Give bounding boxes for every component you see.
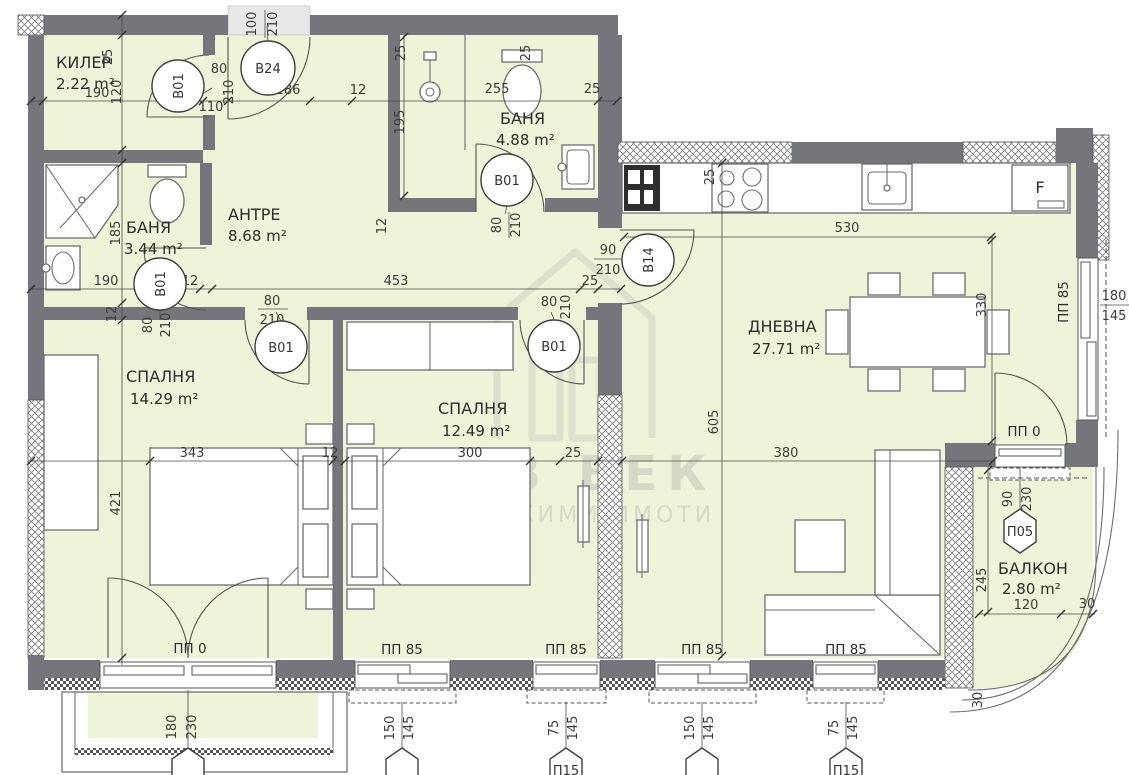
dim-label: 245 xyxy=(975,568,990,593)
wardrobe xyxy=(44,355,98,530)
room-name-closet: КИЛЕР xyxy=(56,53,111,72)
room-area-bedroom1: 14.29 m² xyxy=(130,390,198,408)
kitchen-counter xyxy=(622,163,1070,213)
kitchen-sink xyxy=(862,164,912,210)
room-name-bedroom2: СПАЛНЯ xyxy=(438,399,507,418)
oven-icon xyxy=(624,165,660,211)
window-right xyxy=(1078,258,1098,420)
panel-tag-p15: П15 xyxy=(833,764,859,775)
dim-label: 80 xyxy=(490,217,505,234)
dim-label: 90 xyxy=(600,243,617,258)
dim-label: 210 xyxy=(222,80,237,105)
callout-b01: B01 xyxy=(268,341,293,356)
room-area-bath1: 3.44 m² xyxy=(124,240,183,258)
room-area-bath2: 4.88 m² xyxy=(496,131,555,149)
bed xyxy=(347,424,530,609)
dim-label: 25 xyxy=(584,82,601,97)
dim-label: 453 xyxy=(384,274,409,289)
dim-label: 120 xyxy=(1014,598,1039,613)
french-door-window xyxy=(100,662,276,688)
dim-label: 150 xyxy=(383,716,398,741)
room-name-living: ДНЕВНА xyxy=(748,317,817,336)
dim-label: 210 xyxy=(596,263,621,278)
callout-b01: B01 xyxy=(154,271,169,296)
bed xyxy=(150,424,333,609)
wardrobe xyxy=(347,322,513,370)
dim-label: 300 xyxy=(458,446,483,461)
dim-label: 12 xyxy=(375,218,390,235)
dim-label: 343 xyxy=(180,446,205,461)
window xyxy=(655,662,750,688)
dim-label: 80 xyxy=(264,294,281,309)
window xyxy=(355,662,450,688)
dim-label: 255 xyxy=(485,82,510,97)
fridge-label: F xyxy=(1035,178,1044,197)
dim-label: 25 xyxy=(565,446,582,461)
dim-label: 30 xyxy=(1079,597,1096,612)
dim-label: 210 xyxy=(266,12,281,37)
room-name-balcony: БАЛКОН xyxy=(998,559,1068,578)
balcony-door-window xyxy=(995,445,1065,467)
window xyxy=(533,662,600,688)
window-tag-pp85: ПП 85 xyxy=(1056,281,1072,323)
dim-label: 25 xyxy=(519,45,534,62)
dim-label: 100 xyxy=(245,12,260,37)
dim-label: 12 xyxy=(322,446,339,461)
dim-label: 145 xyxy=(702,716,717,741)
dim-label: 12 xyxy=(350,83,367,98)
callout-b01: B01 xyxy=(494,174,519,189)
room-name-bedroom1: СПАЛНЯ xyxy=(126,367,195,386)
radiator xyxy=(578,480,589,548)
dim-label: 75 xyxy=(547,720,562,737)
dim-label: 80 xyxy=(211,62,228,77)
room-name-bath2: БАНЯ xyxy=(500,109,545,128)
panel-tag-p15: П15 xyxy=(553,764,579,775)
dim-label: 145 xyxy=(846,716,861,741)
dim-label: 30 xyxy=(971,692,986,709)
dim-label: 150 xyxy=(683,716,698,741)
small-balcony-floor xyxy=(88,692,318,738)
dim-label: 195 xyxy=(393,110,408,135)
dim-label: 190 xyxy=(94,274,119,289)
dim-label: 605 xyxy=(707,410,722,435)
room-name-hall: АНТРЕ xyxy=(228,205,281,224)
dim-label: 180 xyxy=(165,715,180,740)
coffee-table xyxy=(795,520,845,572)
dim-label: 145 xyxy=(402,716,417,741)
window-tag-pp0: ПП 0 xyxy=(173,641,206,657)
dim-label: 75 xyxy=(827,720,842,737)
room-name-bath1: БАНЯ xyxy=(126,218,171,237)
dim-label: 421 xyxy=(109,491,124,516)
callout-b01: B01 xyxy=(172,73,187,98)
dim-label: 145 xyxy=(1102,309,1127,324)
callout-b14: B14 xyxy=(642,247,657,272)
dim-label: 210 xyxy=(159,313,174,338)
dim-label: 110 xyxy=(199,100,224,115)
window xyxy=(813,662,878,688)
dim-label: 210 xyxy=(559,295,574,320)
room-area-bedroom2: 12.49 m² xyxy=(442,422,510,440)
window-tag-pp85: ПП 85 xyxy=(381,642,423,658)
fridge: F xyxy=(1012,165,1068,211)
dim-label: 180 xyxy=(1102,289,1127,304)
sink xyxy=(558,145,594,189)
window-tag-pp85: ПП 85 xyxy=(681,642,723,658)
dim-label: 80 xyxy=(541,295,558,310)
window-tag-pp85: ПП 85 xyxy=(545,642,587,658)
cooktop-icon xyxy=(712,164,768,212)
dim-label: 380 xyxy=(774,446,799,461)
dim-label: 12 xyxy=(105,306,120,323)
dim-label: 230 xyxy=(185,715,200,740)
radiator xyxy=(637,514,648,578)
dim-label: 210 xyxy=(509,213,524,238)
dim-label: 80 xyxy=(141,317,156,334)
toilet xyxy=(148,165,186,223)
dim-label: 90 xyxy=(1001,491,1016,508)
panel-tag-p05: П05 xyxy=(1007,525,1033,540)
callout-b01: B01 xyxy=(541,340,566,355)
room-area-closet: 2.22 m² xyxy=(56,75,115,93)
sink xyxy=(42,246,80,290)
dim-label: 530 xyxy=(835,221,860,236)
dim-label: 185 xyxy=(109,221,124,246)
floor-plan: НОВ ВЕК НЕДВИЖИМИ ИМОТИ xyxy=(0,0,1129,775)
room-area-balcony: 2.80 m² xyxy=(1002,580,1061,598)
dim-label: 25 xyxy=(703,169,718,186)
callout-b24: B24 xyxy=(255,62,280,77)
room-area-living: 27.71 m² xyxy=(752,340,820,358)
floor-plan-svg: НОВ ВЕК НЕДВИЖИМИ ИМОТИ xyxy=(0,0,1129,775)
room-area-hall: 8.68 m² xyxy=(228,227,287,245)
window-tag-pp0: ПП 0 xyxy=(1007,424,1040,440)
dim-label: 25 xyxy=(394,45,409,62)
dim-label: 145 xyxy=(566,716,581,741)
dim-label: 230 xyxy=(1020,487,1035,512)
dim-label: 330 xyxy=(975,293,990,318)
window-tag-pp85: ПП 85 xyxy=(825,642,867,658)
